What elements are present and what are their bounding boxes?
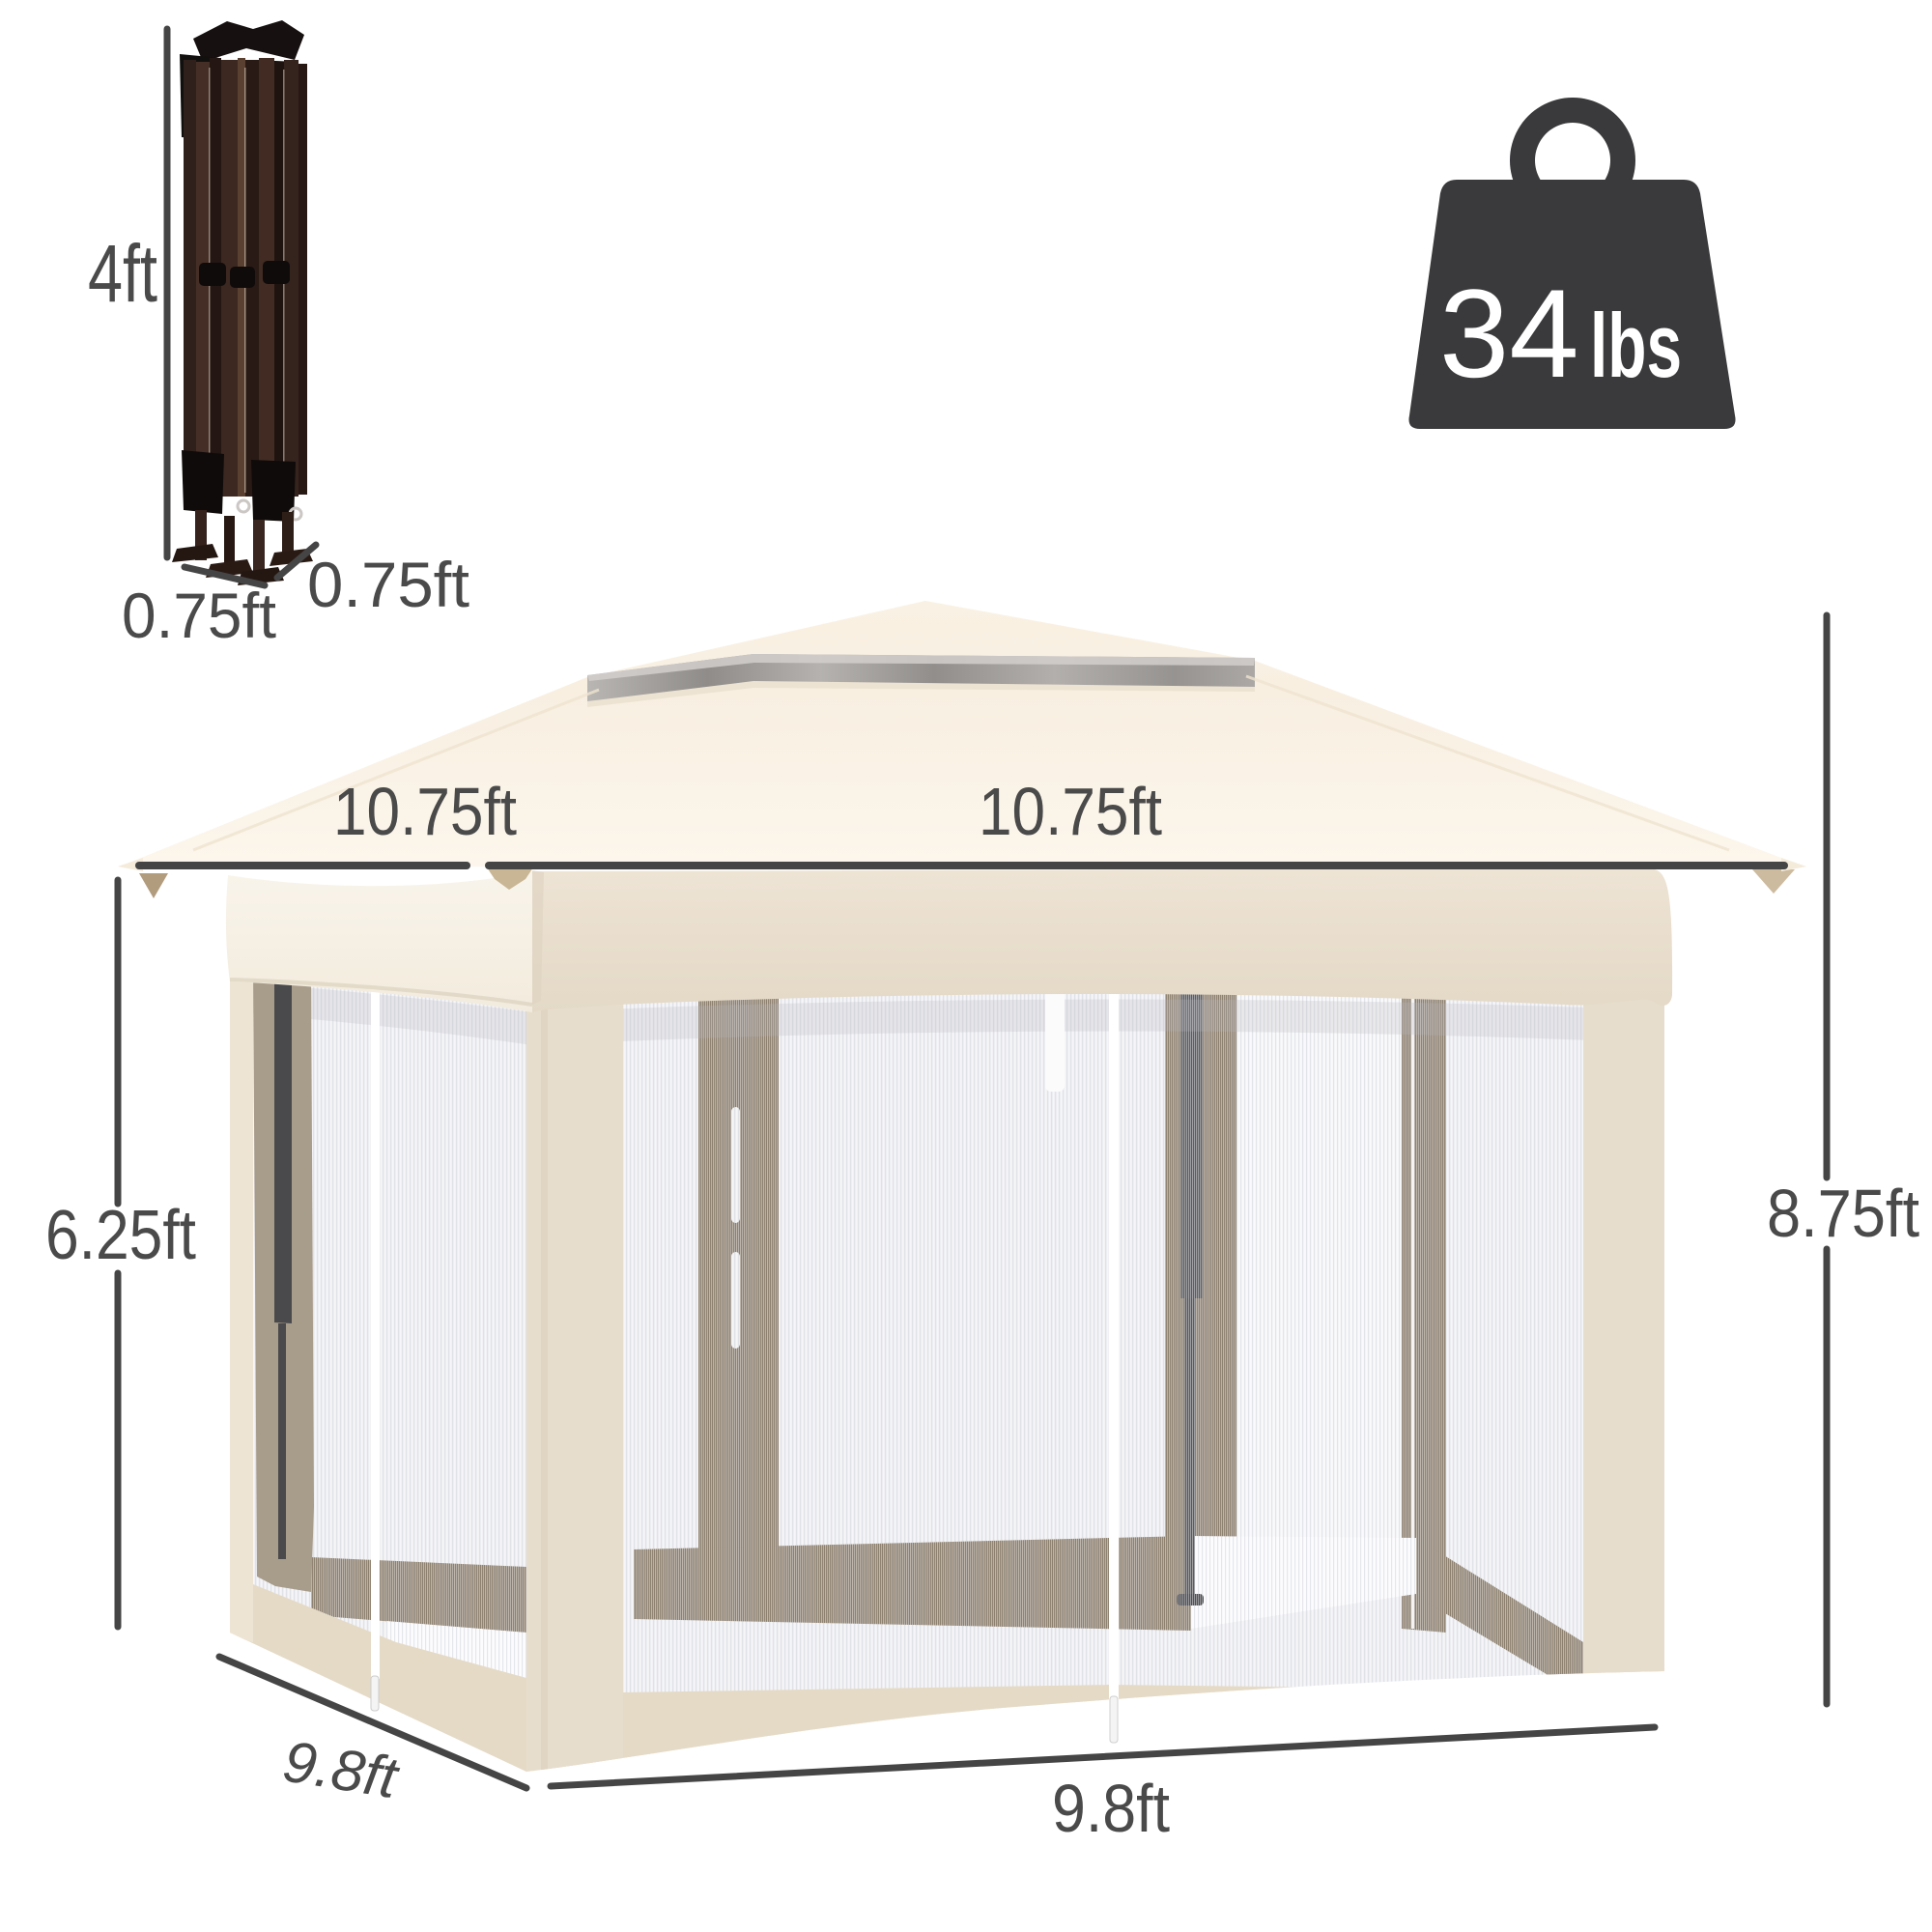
- svg-text:10.75ft: 10.75ft: [979, 774, 1162, 849]
- svg-text:34: 34: [1439, 263, 1579, 404]
- svg-text:9.8ft: 9.8ft: [279, 1728, 404, 1810]
- svg-text:10.75ft: 10.75ft: [333, 774, 517, 849]
- svg-text:lbs: lbs: [1590, 297, 1682, 397]
- svg-text:8.75ft: 8.75ft: [1767, 1176, 1919, 1251]
- svg-text:9.8ft: 9.8ft: [1052, 1771, 1170, 1846]
- svg-text:0.75ft: 0.75ft: [122, 580, 276, 651]
- svg-text:4ft: 4ft: [88, 228, 157, 319]
- svg-text:0.75ft: 0.75ft: [307, 549, 469, 620]
- svg-text:6.25ft: 6.25ft: [45, 1197, 196, 1274]
